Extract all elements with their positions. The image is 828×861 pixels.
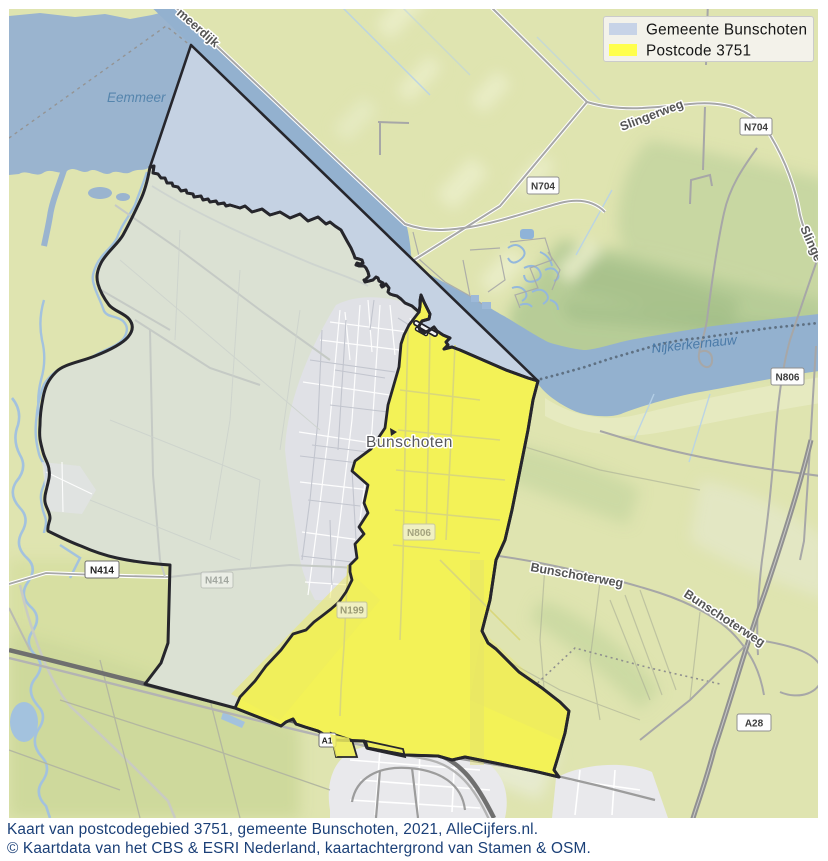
svg-text:N704: N704 bbox=[531, 182, 555, 193]
svg-text:N704: N704 bbox=[744, 123, 768, 134]
svg-text:Kaart van postcodegebied 3751,: Kaart van postcodegebied 3751, gemeente … bbox=[7, 821, 538, 838]
svg-text:N199: N199 bbox=[340, 606, 364, 617]
svg-text:N806: N806 bbox=[776, 373, 800, 384]
svg-text:Eemmeer: Eemmeer bbox=[107, 90, 166, 105]
svg-text:© Kaartdata van het CBS & ESRI: © Kaartdata van het CBS & ESRI Nederland… bbox=[7, 840, 591, 857]
svg-text:N414: N414 bbox=[90, 566, 114, 577]
svg-text:N806: N806 bbox=[407, 528, 431, 539]
svg-text:Gemeente Bunschoten: Gemeente Bunschoten bbox=[646, 22, 807, 39]
svg-text:Bunschoten: Bunschoten bbox=[366, 434, 453, 451]
svg-text:Postcode 3751: Postcode 3751 bbox=[646, 43, 751, 60]
svg-text:N414: N414 bbox=[205, 576, 229, 587]
svg-text:A28: A28 bbox=[745, 719, 764, 730]
